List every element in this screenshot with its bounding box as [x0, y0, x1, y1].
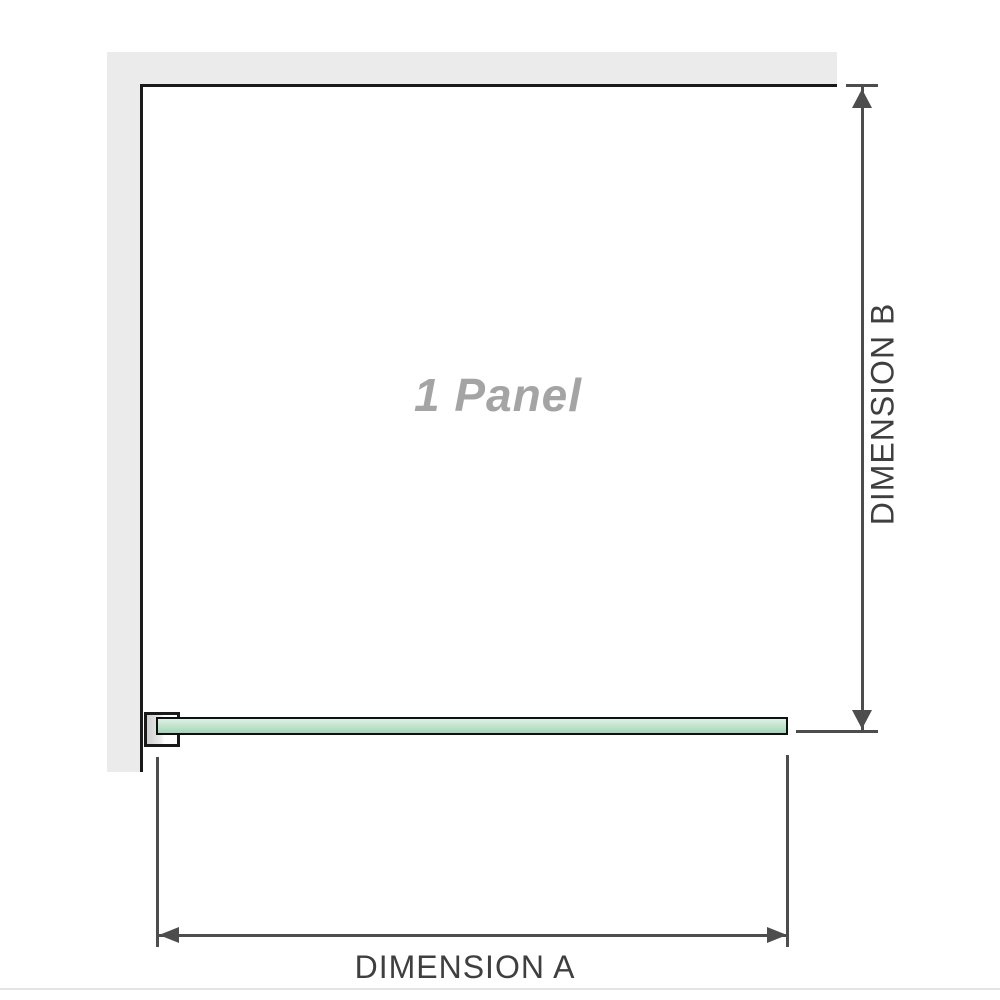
wall-top	[107, 52, 837, 84]
panel-count-watermark: 1 Panel	[414, 368, 582, 422]
dimension-a-extension-right	[786, 755, 789, 947]
dimension-b-arrowhead-up	[852, 89, 872, 108]
glass-panel	[156, 717, 788, 735]
dimension-a-line	[159, 934, 787, 937]
dimension-b-arrowhead-down	[852, 710, 872, 729]
bottom-divider-line	[0, 988, 1000, 990]
dimension-b-top-tick	[846, 84, 878, 87]
panel-outline-left-edge	[140, 84, 143, 772]
dimension-b-label: DIMENSION B	[865, 303, 902, 526]
dimension-b-bottom-tick	[796, 730, 878, 733]
panel-dimension-diagram: 1 Panel DIMENSION B DIMENSION A	[0, 0, 1000, 1000]
wall-left	[107, 52, 140, 772]
dimension-a-extension-left	[156, 757, 159, 947]
dimension-a-label: DIMENSION A	[355, 949, 576, 986]
dimension-a-arrowhead-left	[159, 927, 179, 943]
dimension-a-arrowhead-right	[767, 927, 787, 943]
panel-outline-top-edge	[140, 84, 837, 87]
